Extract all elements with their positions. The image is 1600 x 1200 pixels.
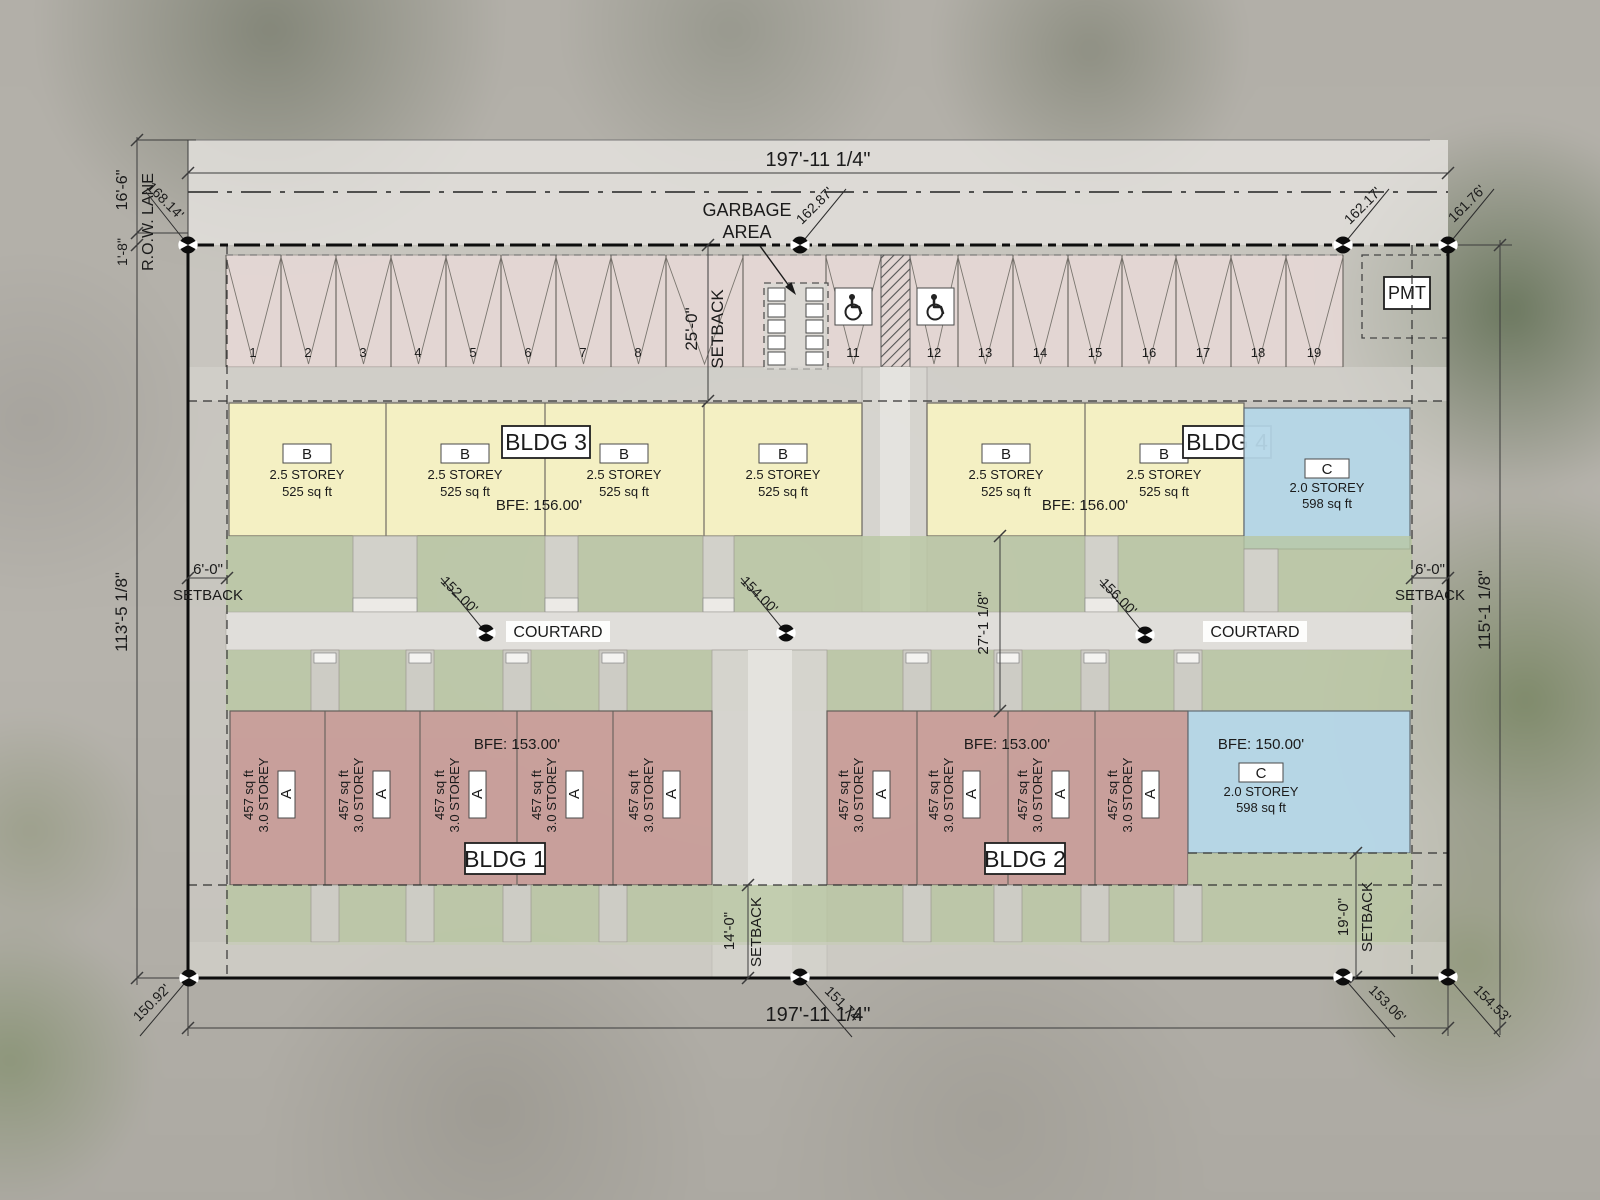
- bldg4: B 2.5 STOREY 525 sq ft B 2.5 STOREY 525 …: [927, 403, 1271, 536]
- porch-step: [353, 598, 417, 612]
- stall-number: 12: [927, 345, 941, 360]
- garbage-bin: [768, 352, 785, 365]
- garbage-bin: [806, 336, 823, 349]
- garbage-enclosure: [764, 283, 828, 369]
- unit-a-area: 457 sq ft: [926, 770, 941, 820]
- unit-a-area: 457 sq ft: [432, 770, 447, 820]
- unit-b-letter: B: [302, 446, 312, 463]
- unit-a-storey: 3.0 STOREY: [447, 757, 462, 832]
- stall-number: 8: [634, 345, 641, 360]
- unit-a-area: 457 sq ft: [336, 770, 351, 820]
- dim-lane-width: 16'-6": [114, 170, 131, 211]
- parking-row: 1 2 3 4 5 6 7 8 11 12 13 14 15 16 17 18 …: [226, 255, 1448, 369]
- garbage-bin: [806, 304, 823, 317]
- setback-rear-right-dim: 19'-0": [1335, 898, 1352, 936]
- dim-lane-offset: 1'-8": [114, 238, 130, 266]
- unit-c-letter: C: [1322, 461, 1333, 478]
- stall-number: 14: [1033, 345, 1047, 360]
- unit-b-letter: B: [778, 446, 788, 463]
- unit-a-storey: 3.0 STOREY: [851, 757, 866, 832]
- unit-a-area: 457 sq ft: [836, 770, 851, 820]
- stall-number: 7: [579, 345, 586, 360]
- unit-a-letter: A: [963, 789, 980, 799]
- unit-b-area: 525 sq ft: [599, 484, 649, 499]
- dim-top-width: 197'-11 1/4": [765, 149, 870, 171]
- site-plan-drawing: 1 2 3 4 5 6 7 8 11 12 13 14 15 16 17 18 …: [0, 0, 1600, 1200]
- stall-number: 4: [414, 345, 421, 360]
- unit-b-area: 525 sq ft: [440, 484, 490, 499]
- bldg4-bfe: BFE: 156.00': [1042, 497, 1128, 514]
- bldg1-title: BLDG 1: [464, 846, 546, 872]
- walkway-stub: [1174, 885, 1202, 942]
- unit-a-storey: 3.0 STOREY: [1030, 757, 1045, 832]
- walkway-stub: [1244, 549, 1278, 612]
- unit-a-area: 457 sq ft: [529, 770, 544, 820]
- stall-number: 6: [524, 345, 531, 360]
- garbage-bin: [768, 336, 785, 349]
- stall-number: 13: [978, 345, 992, 360]
- porch-step: [1084, 653, 1106, 663]
- unit-a-area: 457 sq ft: [1105, 770, 1120, 820]
- unit-a-area: 457 sq ft: [241, 770, 256, 820]
- unit-a-storey: 3.0 STOREY: [256, 757, 271, 832]
- unit-b-area: 525 sq ft: [282, 484, 332, 499]
- porch-step: [409, 653, 431, 663]
- bldg2-bfe: BFE: 153.00': [964, 736, 1050, 753]
- unit-a-storey: 3.0 STOREY: [351, 757, 366, 832]
- setback-left-dim: 6'-0": [193, 561, 223, 578]
- stall-number: 16: [1142, 345, 1156, 360]
- porch-step: [1177, 653, 1199, 663]
- stall-number: 5: [469, 345, 476, 360]
- bldg2-title: BLDG 2: [984, 846, 1066, 872]
- bldg1-bfe: BFE: 153.00': [474, 736, 560, 753]
- stall-number: 11: [846, 345, 860, 360]
- walkway-stub: [406, 885, 434, 942]
- unit-b-area: 525 sq ft: [981, 484, 1031, 499]
- unit-c-area: 598 sq ft: [1236, 800, 1286, 815]
- garbage-bin: [806, 288, 823, 301]
- stall-number: 15: [1088, 345, 1102, 360]
- unit-b-letter: B: [1159, 446, 1169, 463]
- courtyard: COURTARD COURTARD: [226, 612, 1412, 650]
- unit-c-bottom-footprint: [1188, 711, 1410, 853]
- elevation-bottom-right: 153.06': [1366, 982, 1409, 1025]
- unit-b-area: 525 sq ft: [758, 484, 808, 499]
- unit-b-letter: B: [1001, 446, 1011, 463]
- stall-number: 2: [304, 345, 311, 360]
- unit-a-storey: 3.0 STOREY: [1120, 757, 1135, 832]
- garbage-bin: [768, 304, 785, 317]
- dim-left-height: 113'-5 1/8": [112, 572, 131, 652]
- upper-lawn: [226, 536, 1412, 612]
- accessible-parking-icon: [917, 288, 954, 325]
- unit-c-storey: 2.0 STOREY: [1224, 784, 1299, 799]
- unit-b-storey: 2.5 STOREY: [969, 467, 1044, 482]
- unit-c-storey: 2.0 STOREY: [1290, 480, 1365, 495]
- stall-number: 18: [1251, 345, 1265, 360]
- dim-courtyard-depth: 27'-1 1/8": [975, 591, 992, 654]
- unit-a-letter: A: [873, 789, 890, 799]
- site-plan: 1 2 3 4 5 6 7 8 11 12 13 14 15 16 17 18 …: [0, 0, 1600, 1200]
- unit-c-bottom-bfe: BFE: 150.00': [1218, 736, 1304, 753]
- garbage-area-label-line1: GARBAGE: [702, 200, 791, 220]
- setback-rear-center-dim: 14'-0": [721, 912, 738, 950]
- walkway-stub: [311, 885, 339, 942]
- stall-number: 17: [1196, 345, 1210, 360]
- drive-aisle: [188, 367, 1448, 401]
- pmt-label: PMT: [1388, 283, 1426, 303]
- porch-step: [545, 598, 578, 612]
- unit-a-letter: A: [1142, 789, 1159, 799]
- setback-right-label: SETBACK: [1395, 587, 1465, 604]
- unit-c-top: C 2.0 STOREY 598 sq ft: [1244, 408, 1410, 549]
- walkway-stub: [903, 885, 931, 942]
- unit-b-storey: 2.5 STOREY: [270, 467, 345, 482]
- rear-pavement: [188, 942, 1448, 978]
- stall-number: 3: [359, 345, 366, 360]
- bldg3: B 2.5 STOREY 525 sq ft B 2.5 STOREY 525 …: [229, 403, 862, 536]
- porch-step: [906, 653, 928, 663]
- setback-front-dim: 25'-0": [682, 307, 701, 350]
- porch-step: [602, 653, 624, 663]
- setback-right-dim: 6'-0": [1415, 561, 1445, 578]
- unit-c-area: 598 sq ft: [1302, 496, 1352, 511]
- bldg3-bfe: BFE: 156.00': [496, 497, 582, 514]
- unit-b-letter: B: [619, 446, 629, 463]
- porch-step: [703, 598, 734, 612]
- unit-b-storey: 2.5 STOREY: [746, 467, 821, 482]
- stall-number: 1: [249, 345, 256, 360]
- crosswalk-hatch: [881, 255, 910, 367]
- unit-b-area: 525 sq ft: [1139, 484, 1189, 499]
- unit-a-letter: A: [278, 789, 295, 799]
- unit-a-letter: A: [469, 789, 486, 799]
- unit-a-area: 457 sq ft: [626, 770, 641, 820]
- walkway-stub: [599, 885, 627, 942]
- bldg3-title: BLDG 3: [505, 429, 587, 455]
- dim-right-height: 115'-1 1/8": [1475, 570, 1494, 650]
- unit-b-storey: 2.5 STOREY: [428, 467, 503, 482]
- unit-c-bottom: BFE: 150.00' C 2.0 STOREY 598 sq ft: [1188, 711, 1410, 853]
- unit-a-letter: A: [663, 789, 680, 799]
- walkway-stub: [1081, 885, 1109, 942]
- unit-a-storey: 3.0 STOREY: [941, 757, 956, 832]
- garbage-area-label-line2: AREA: [722, 222, 771, 242]
- setback-left-label: SETBACK: [173, 587, 243, 604]
- walkway-stub: [994, 885, 1022, 942]
- setback-front-label: SETBACK: [708, 289, 727, 369]
- stall-number: 19: [1307, 345, 1321, 360]
- unit-a-storey: 3.0 STOREY: [544, 757, 559, 832]
- elevation-bottom-corner: 154.53': [1471, 982, 1514, 1025]
- garbage-bin: [768, 288, 785, 301]
- elevation-bottom-left: 150.92': [130, 981, 173, 1024]
- bldg2: 457 sq ft 3.0 STOREY A 457 sq ft 3.0 STO…: [827, 711, 1188, 885]
- courtyard-label-left: COURTARD: [513, 624, 602, 641]
- unit-a-letter: A: [373, 789, 390, 799]
- unit-a-letter: A: [1052, 789, 1069, 799]
- setback-rear-right-label: SETBACK: [1359, 882, 1376, 952]
- unit-b-storey: 2.5 STOREY: [1127, 467, 1202, 482]
- unit-a-area: 457 sq ft: [1015, 770, 1030, 820]
- courtyard-label-right: COURTARD: [1210, 624, 1299, 641]
- unit-a-storey: 3.0 STOREY: [641, 757, 656, 832]
- garbage-bin: [806, 320, 823, 333]
- accessible-parking-icon: [835, 288, 872, 325]
- unit-b-storey: 2.5 STOREY: [587, 467, 662, 482]
- bldg1: 457 sq ft 3.0 STOREY A 457 sq ft 3.0 STO…: [230, 711, 712, 885]
- walkway-stub: [503, 885, 531, 942]
- setback-rear-center-label: SETBACK: [748, 897, 765, 967]
- unit-c-letter: C: [1256, 765, 1267, 782]
- unit-a-letter: A: [566, 789, 583, 799]
- garbage-bin: [768, 320, 785, 333]
- unit-b-letter: B: [460, 446, 470, 463]
- porch-step: [506, 653, 528, 663]
- garbage-bin: [806, 352, 823, 365]
- porch-step: [314, 653, 336, 663]
